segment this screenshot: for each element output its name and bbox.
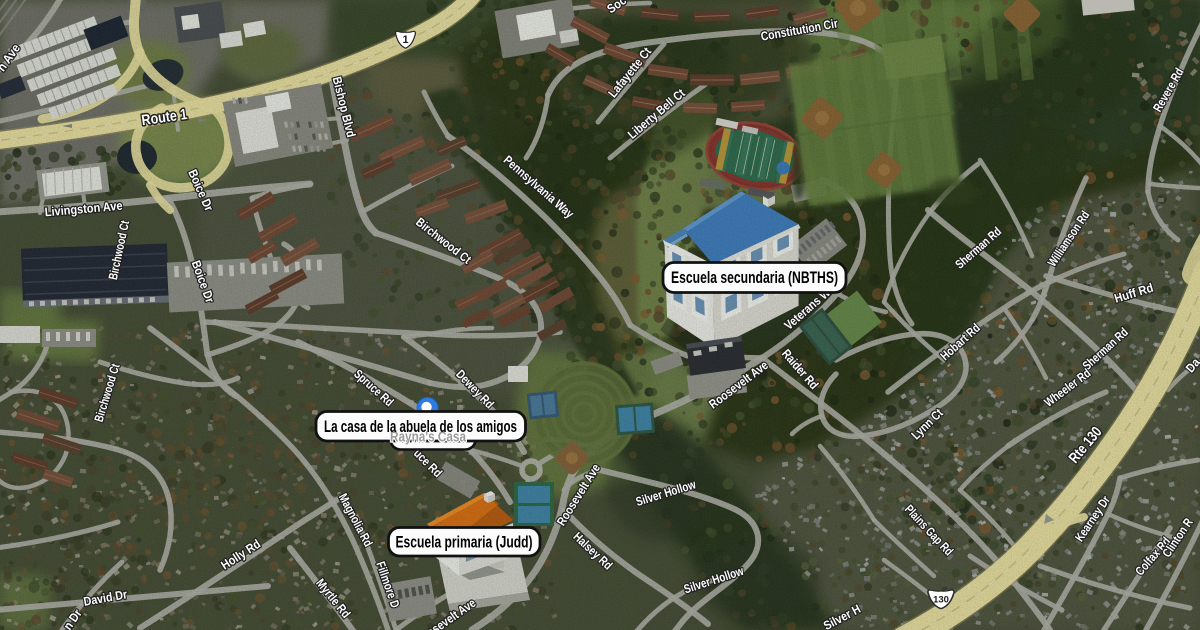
svg-text:130: 130 [933, 595, 949, 606]
svg-text:La casa de la abuela de los am: La casa de la abuela de los amigos [324, 417, 517, 436]
svg-text:1: 1 [402, 34, 408, 46]
svg-text:Escuela primaria (Judd): Escuela primaria (Judd) [396, 534, 533, 552]
svg-text:Escuela secundaria (NBTHS): Escuela secundaria (NBTHS) [671, 268, 838, 287]
